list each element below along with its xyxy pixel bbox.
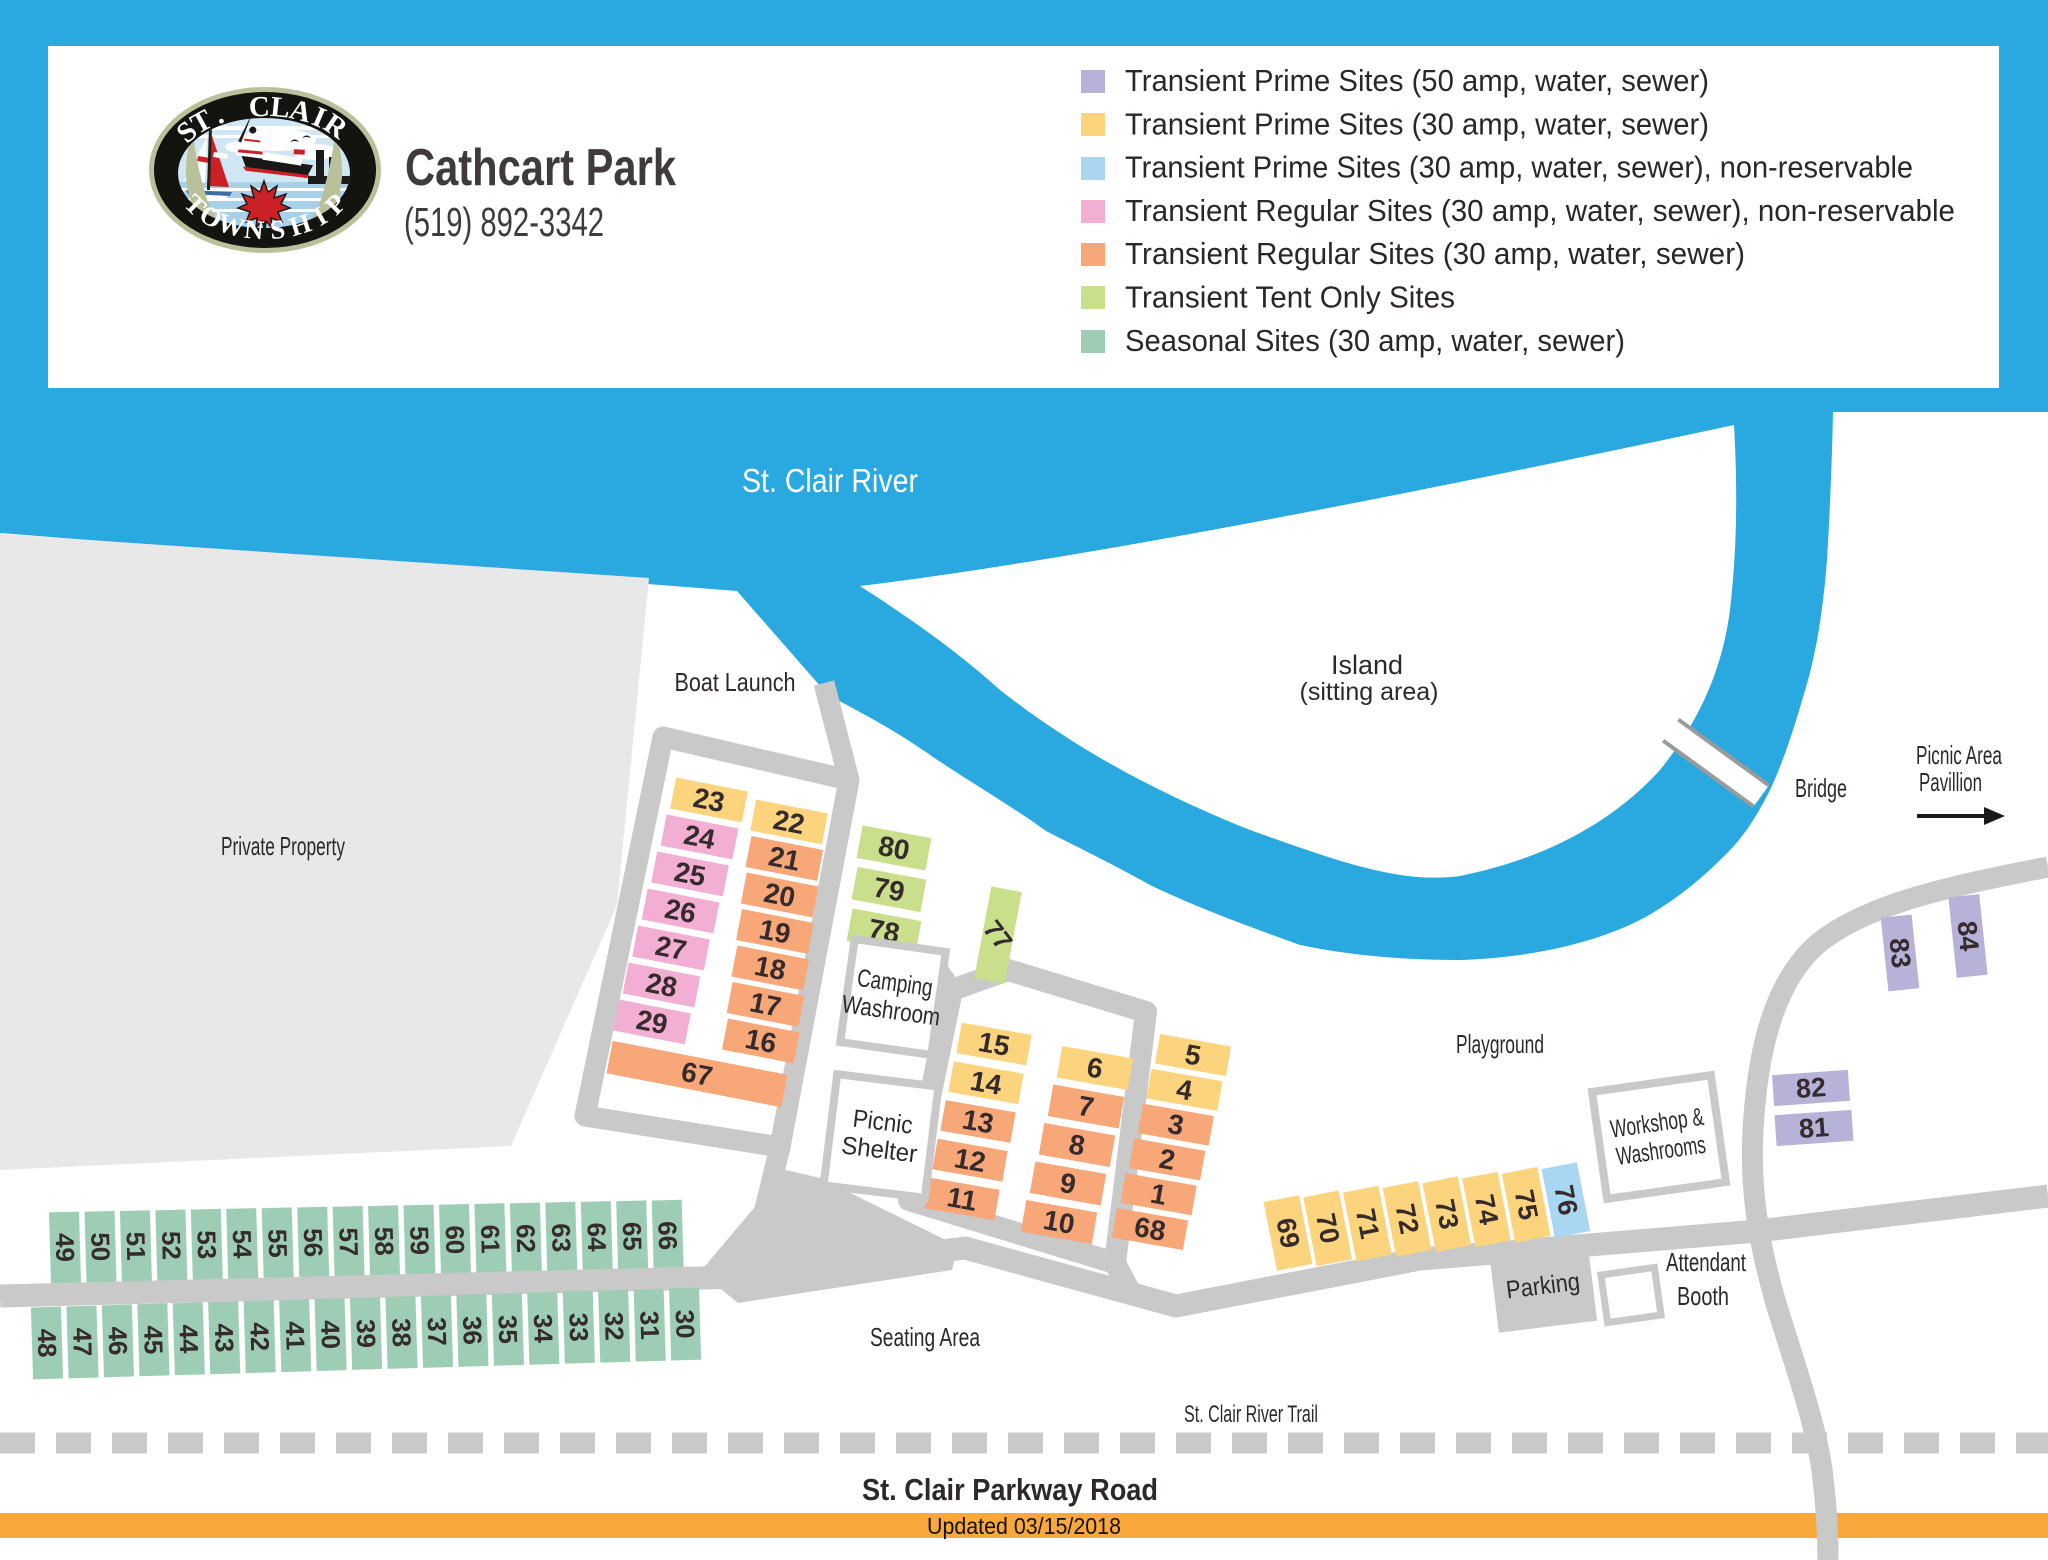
svg-text:52: 52 [156,1231,187,1261]
svg-text:Seating Area: Seating Area [870,1322,980,1352]
svg-text:43: 43 [209,1323,240,1353]
svg-text:32: 32 [599,1311,630,1341]
svg-text:Transient Regular Sites (30 am: Transient Regular Sites (30 amp, water, … [1125,236,1745,271]
svg-text:St. Clair River: St. Clair River [742,462,918,499]
svg-text:81: 81 [1798,1112,1830,1144]
svg-text:23: 23 [691,782,727,818]
svg-text:Private Property: Private Property [221,831,345,861]
svg-text:83: 83 [1884,936,1917,969]
svg-text:20: 20 [761,877,797,913]
svg-text:58: 58 [369,1226,400,1256]
svg-text:12: 12 [952,1142,988,1178]
svg-text:Transient Regular Sites (30 am: Transient Regular Sites (30 amp, water, … [1125,193,1955,228]
svg-text:Playground: Playground [1456,1029,1544,1059]
svg-text:62: 62 [511,1224,542,1254]
svg-text:22: 22 [771,804,807,840]
svg-text:68: 68 [1132,1211,1168,1247]
svg-text:37: 37 [422,1317,453,1347]
svg-text:70: 70 [1310,1211,1345,1246]
svg-text:29: 29 [634,1004,670,1040]
svg-text:(519) 892-3342: (519) 892-3342 [404,199,604,245]
svg-text:21: 21 [766,840,802,876]
svg-text:38: 38 [386,1318,417,1348]
svg-text:Seasonal Sites (30 amp, water,: Seasonal Sites (30 amp, water, sewer) [1125,323,1625,358]
svg-text:Booth: Booth [1677,1281,1729,1311]
svg-text:26: 26 [662,893,698,929]
svg-text:44: 44 [173,1324,204,1354]
svg-text:39: 39 [351,1319,382,1349]
svg-text:53: 53 [191,1230,222,1260]
svg-text:56: 56 [298,1228,329,1258]
svg-text:Transient Prime Sites (30 amp,: Transient Prime Sites (30 amp, water, se… [1125,150,1913,185]
svg-text:45: 45 [138,1325,169,1355]
svg-text:57: 57 [333,1227,364,1257]
svg-text:15: 15 [976,1026,1012,1062]
svg-text:74: 74 [1469,1192,1504,1227]
svg-text:17: 17 [747,986,783,1022]
svg-text:51: 51 [121,1231,152,1261]
svg-text:80: 80 [876,830,912,866]
svg-text:St. Clair River Trail: St. Clair River Trail [1184,1401,1318,1428]
svg-text:10: 10 [1041,1204,1077,1240]
svg-text:65: 65 [617,1221,648,1251]
svg-text:Pavillion: Pavillion [1919,767,1982,797]
svg-text:84: 84 [1952,919,1985,952]
svg-text:76: 76 [1548,1182,1583,1217]
svg-text:Island: Island [1331,650,1403,680]
svg-text:30: 30 [670,1309,701,1339]
svg-text:63: 63 [546,1223,577,1253]
svg-text:Cathcart Park: Cathcart Park [405,139,676,197]
svg-text:Transient Prime Sites (50 amp,: Transient Prime Sites (50 amp, water, se… [1125,63,1709,98]
svg-text:59: 59 [404,1226,435,1256]
svg-text:72: 72 [1390,1201,1425,1236]
svg-text:75: 75 [1509,1187,1544,1222]
svg-text:48: 48 [32,1328,63,1358]
svg-text:18: 18 [752,950,788,986]
svg-text:35: 35 [492,1314,523,1344]
svg-text:34: 34 [528,1313,559,1343]
svg-text:31: 31 [634,1310,665,1340]
svg-text:46: 46 [102,1326,133,1356]
svg-text:82: 82 [1795,1072,1827,1104]
svg-text:Boat Launch: Boat Launch [675,667,796,697]
svg-text:Attendant: Attendant [1666,1247,1747,1277]
svg-text:13: 13 [960,1104,996,1140]
svg-text:Updated 03/15/2018: Updated 03/15/2018 [927,1513,1121,1539]
svg-text:61: 61 [475,1224,506,1254]
svg-text:28: 28 [643,967,679,1003]
svg-text:67: 67 [679,1056,715,1092]
svg-text:33: 33 [563,1312,594,1342]
svg-text:64: 64 [581,1222,612,1252]
svg-text:47: 47 [67,1327,98,1357]
svg-text:49: 49 [50,1233,81,1263]
svg-text:79: 79 [871,871,907,907]
svg-text:71: 71 [1350,1206,1385,1241]
svg-text:19: 19 [757,913,793,949]
svg-text:(sitting area): (sitting area) [1300,678,1439,706]
svg-text:69: 69 [1270,1215,1305,1250]
svg-text:73: 73 [1429,1197,1464,1232]
svg-text:S: S [269,214,287,245]
svg-text:55: 55 [262,1228,293,1258]
svg-text:St. Clair Parkway Road: St. Clair Parkway Road [862,1472,1158,1507]
svg-text:66: 66 [652,1221,683,1251]
svg-text:Bridge: Bridge [1795,773,1847,803]
svg-text:16: 16 [743,1023,779,1059]
svg-text:N: N [243,214,266,246]
svg-text:14: 14 [968,1065,1004,1101]
svg-text:C: C [248,91,270,124]
svg-text:25: 25 [672,856,708,892]
svg-text:Transient Prime Sites (30 amp,: Transient Prime Sites (30 amp, water, se… [1125,106,1709,141]
svg-text:60: 60 [440,1225,471,1255]
svg-text:40: 40 [315,1320,346,1350]
svg-text:11: 11 [945,1181,980,1217]
svg-text:36: 36 [457,1316,488,1346]
svg-text:Transient Tent Only Sites: Transient Tent Only Sites [1125,280,1455,315]
svg-text:50: 50 [85,1232,116,1262]
svg-text:Picnic Area: Picnic Area [1916,740,2002,770]
svg-text:24: 24 [681,819,718,855]
svg-text:54: 54 [227,1229,258,1259]
svg-text:42: 42 [244,1322,275,1352]
svg-text:27: 27 [653,930,689,966]
svg-text:41: 41 [280,1321,311,1351]
